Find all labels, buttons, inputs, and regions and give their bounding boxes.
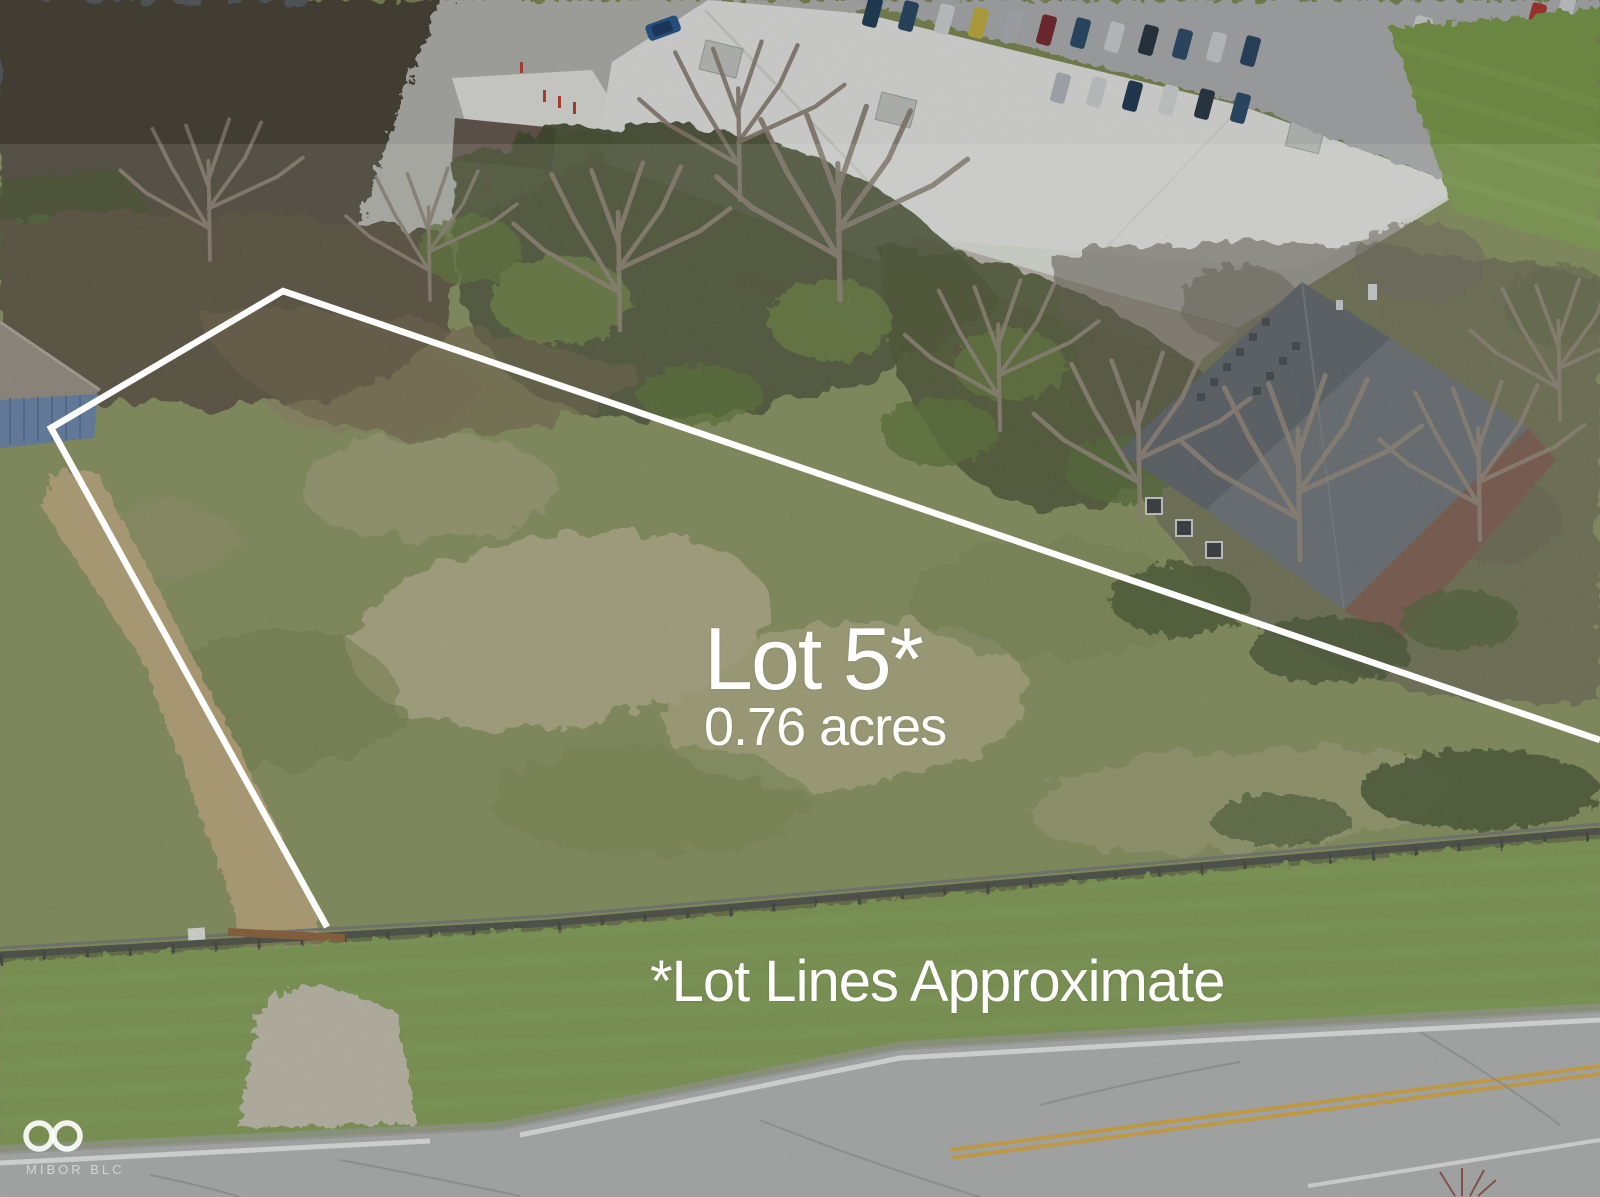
lot-lines-disclaimer: *Lot Lines Approximate xyxy=(650,948,1224,1015)
watermark-brand: MIBOR BLC xyxy=(26,1162,125,1177)
lot-number-label: Lot 5* xyxy=(704,608,922,710)
aerial-photo: XTRA xyxy=(0,0,1600,1197)
infinity-icon xyxy=(20,1118,90,1154)
lot-area-label: 0.76 acres xyxy=(704,696,946,758)
watermark: MIBOR BLC xyxy=(20,1118,125,1177)
aerial-photo-lot-listing: XTRA xyxy=(0,0,1600,1197)
